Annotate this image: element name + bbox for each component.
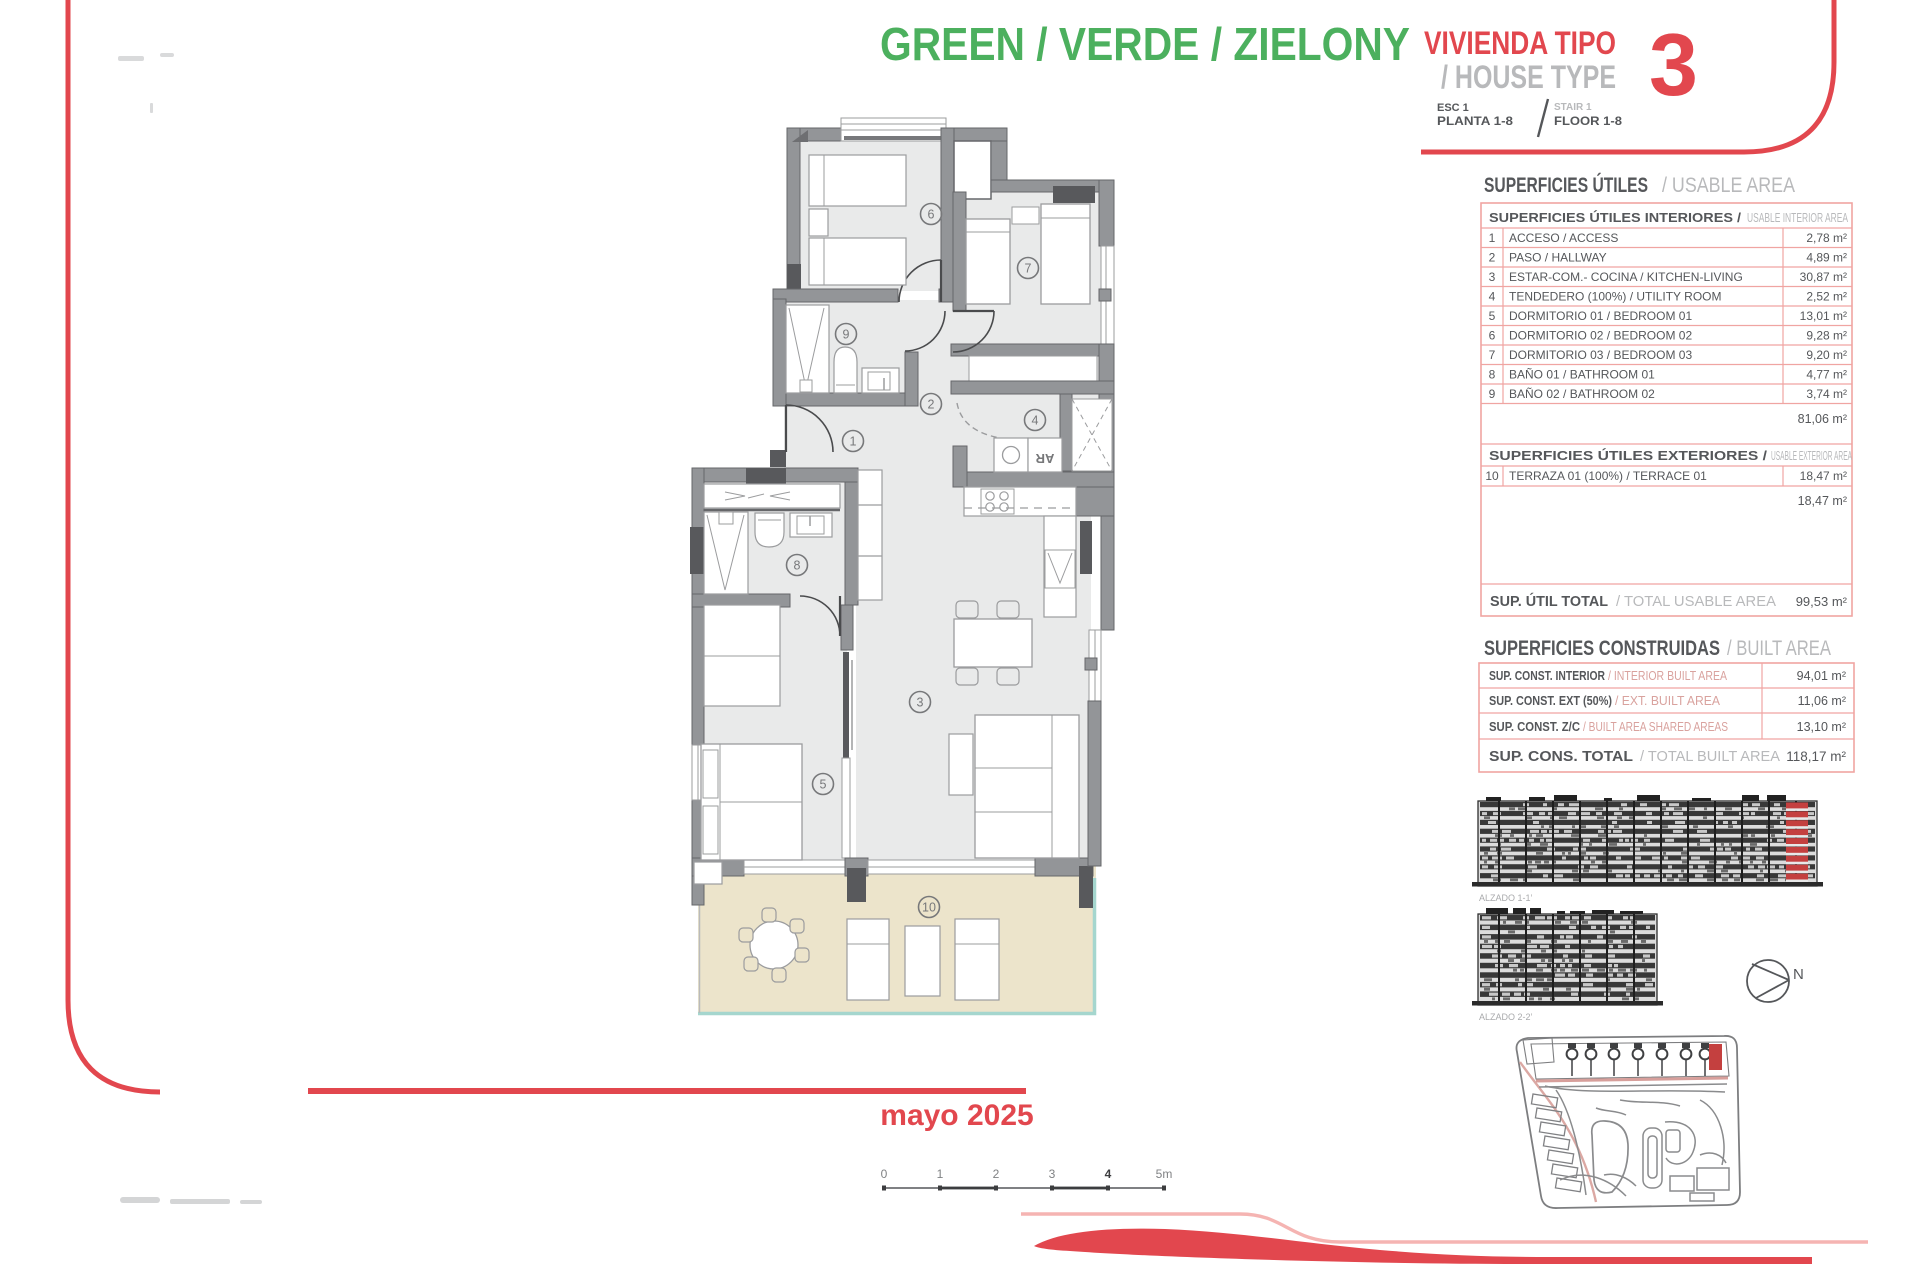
svg-text:SUP. ÚTIL TOTAL: SUP. ÚTIL TOTAL (1490, 592, 1608, 610)
svg-text:13,10 m²: 13,10 m² (1797, 720, 1846, 734)
svg-text:/ TOTAL BUILT AREA: / TOTAL BUILT AREA (1640, 749, 1780, 765)
svg-text:ESC 1: ESC 1 (1437, 102, 1469, 114)
svg-text:/ BUILT AREA SHARED AREAS: / BUILT AREA SHARED AREAS (1583, 720, 1728, 734)
svg-text:BAÑO 01 / BATHROOM 01: BAÑO 01 / BATHROOM 01 (1509, 368, 1655, 382)
svg-text:18,47 m²: 18,47 m² (1798, 494, 1847, 508)
svg-text:5m: 5m (1156, 1167, 1173, 1181)
svg-text:DORMITORIO 01 / BEDROOM 01: DORMITORIO 01 / BEDROOM 01 (1509, 309, 1692, 323)
svg-text:11,06 m²: 11,06 m² (1798, 694, 1846, 708)
svg-text:4: 4 (1032, 413, 1039, 427)
svg-text:3: 3 (1049, 1167, 1056, 1181)
svg-text:13,01 m²: 13,01 m² (1800, 309, 1847, 323)
svg-text:ALZADO 1-1’: ALZADO 1-1’ (1479, 893, 1533, 903)
svg-text:SUPERFICIES ÚTILES EXTERIORES: SUPERFICIES ÚTILES EXTERIORES / (1489, 448, 1767, 463)
svg-text:2: 2 (993, 1167, 1000, 1181)
svg-text:USABLE EXTERIOR AREA: USABLE EXTERIOR AREA (1771, 448, 1852, 463)
svg-text:TENDEDERO (100%) / UTILITY ROO: TENDEDERO (100%) / UTILITY ROOM (1509, 290, 1721, 304)
svg-text:1: 1 (937, 1167, 944, 1181)
svg-text:5: 5 (820, 777, 827, 791)
svg-text:TERRAZA 01 (100%) / TERRACE 01: TERRAZA 01 (100%) / TERRACE 01 (1509, 469, 1707, 483)
svg-text:DORMITORIO 02 / BEDROOM 02: DORMITORIO 02 / BEDROOM 02 (1509, 329, 1692, 343)
svg-text:5: 5 (1489, 309, 1496, 323)
svg-text:/ INTERIOR BUILT AREA: / INTERIOR BUILT AREA (1608, 669, 1728, 683)
svg-text:10: 10 (922, 900, 936, 914)
svg-text:FLOOR 1-8: FLOOR 1-8 (1554, 116, 1623, 128)
svg-text:2,78 m²: 2,78 m² (1806, 231, 1847, 245)
svg-text:3: 3 (1489, 270, 1496, 284)
svg-text:SUP. CONS. TOTAL: SUP. CONS. TOTAL (1489, 749, 1633, 765)
svg-text:/ BUILT AREA: / BUILT AREA (1727, 637, 1831, 660)
svg-text:99,53 m²: 99,53 m² (1796, 594, 1848, 609)
svg-text:30,87 m²: 30,87 m² (1800, 270, 1847, 284)
svg-text:1: 1 (1489, 231, 1496, 245)
svg-text:9,20 m²: 9,20 m² (1806, 348, 1847, 362)
svg-text:SUPERFICIES ÚTILES: SUPERFICIES ÚTILES (1484, 173, 1648, 197)
svg-text:8: 8 (1489, 368, 1496, 382)
svg-text:STAIR 1: STAIR 1 (1554, 102, 1592, 113)
svg-text:mayo 2025: mayo 2025 (880, 1099, 1033, 1132)
svg-text:94,01 m²: 94,01 m² (1797, 669, 1846, 683)
svg-text:1: 1 (850, 434, 857, 448)
svg-text:SUP. CONST. EXT (50%): SUP. CONST. EXT (50%) (1489, 694, 1612, 708)
svg-text:9: 9 (1489, 387, 1496, 401)
svg-text:VIVIENDA TIPO: VIVIENDA TIPO (1424, 25, 1616, 61)
svg-text:ACCESO / ACCESS: ACCESO / ACCESS (1509, 231, 1618, 245)
svg-text:SUP. CONST. INTERIOR: SUP. CONST. INTERIOR (1489, 669, 1605, 683)
svg-text:/ TOTAL USABLE AREA: / TOTAL USABLE AREA (1616, 594, 1776, 610)
svg-text:USABLE INTERIOR AREA: USABLE INTERIOR AREA (1747, 210, 1848, 225)
svg-text:9,28 m²: 9,28 m² (1806, 329, 1847, 343)
svg-text:81,06 m²: 81,06 m² (1798, 412, 1847, 426)
svg-text:4,89 m²: 4,89 m² (1806, 251, 1847, 265)
svg-text:SUPERFICIES CONSTRUIDAS: SUPERFICIES CONSTRUIDAS (1484, 637, 1720, 660)
svg-text:3: 3 (917, 695, 924, 709)
svg-text:4: 4 (1489, 290, 1496, 304)
svg-text:6: 6 (1489, 329, 1496, 343)
svg-text:SUP. CONST. Z/C: SUP. CONST. Z/C (1489, 720, 1580, 734)
svg-text:6: 6 (928, 207, 935, 221)
svg-text:/ EXT. BUILT AREA: / EXT. BUILT AREA (1615, 694, 1721, 708)
svg-text:18,47 m²: 18,47 m² (1800, 469, 1847, 483)
svg-text:ESTAR-COM.- COCINA / KITCHEN-L: ESTAR-COM.- COCINA / KITCHEN-LIVING (1509, 270, 1743, 284)
svg-text:4: 4 (1105, 1167, 1112, 1181)
svg-text:10: 10 (1485, 469, 1499, 483)
svg-text:BAÑO 02 / BATHROOM 02: BAÑO 02 / BATHROOM 02 (1509, 387, 1655, 401)
svg-text:2: 2 (928, 397, 935, 411)
svg-text:9: 9 (843, 327, 850, 341)
svg-text:2,52 m²: 2,52 m² (1806, 290, 1847, 304)
svg-text:AR: AR (1035, 451, 1054, 466)
svg-text:SUPERFICIES ÚTILES INTERIORES: SUPERFICIES ÚTILES INTERIORES / (1489, 210, 1741, 225)
svg-text:3: 3 (1649, 15, 1698, 114)
svg-text:PASO / HALLWAY: PASO / HALLWAY (1509, 251, 1607, 265)
svg-text:/ USABLE AREA: / USABLE AREA (1662, 174, 1795, 197)
svg-text:N: N (1793, 966, 1804, 983)
svg-text:/ HOUSE TYPE: / HOUSE TYPE (1441, 59, 1616, 95)
svg-text:0: 0 (881, 1167, 888, 1181)
svg-text:3,74 m²: 3,74 m² (1806, 387, 1847, 401)
svg-text:GREEN / VERDE / ZIELONY: GREEN / VERDE / ZIELONY (880, 18, 1410, 70)
svg-text:2: 2 (1489, 251, 1496, 265)
svg-text:118,17 m²: 118,17 m² (1786, 749, 1846, 764)
svg-text:DORMITORIO 03 / BEDROOM 03: DORMITORIO 03 / BEDROOM 03 (1509, 348, 1692, 362)
svg-text:7: 7 (1489, 348, 1496, 362)
svg-text:8: 8 (794, 558, 801, 572)
svg-text:7: 7 (1025, 261, 1032, 275)
svg-text:4,77 m²: 4,77 m² (1806, 368, 1847, 382)
svg-text:ALZADO 2-2’: ALZADO 2-2’ (1479, 1012, 1533, 1022)
svg-text:PLANTA 1-8: PLANTA 1-8 (1437, 116, 1514, 128)
